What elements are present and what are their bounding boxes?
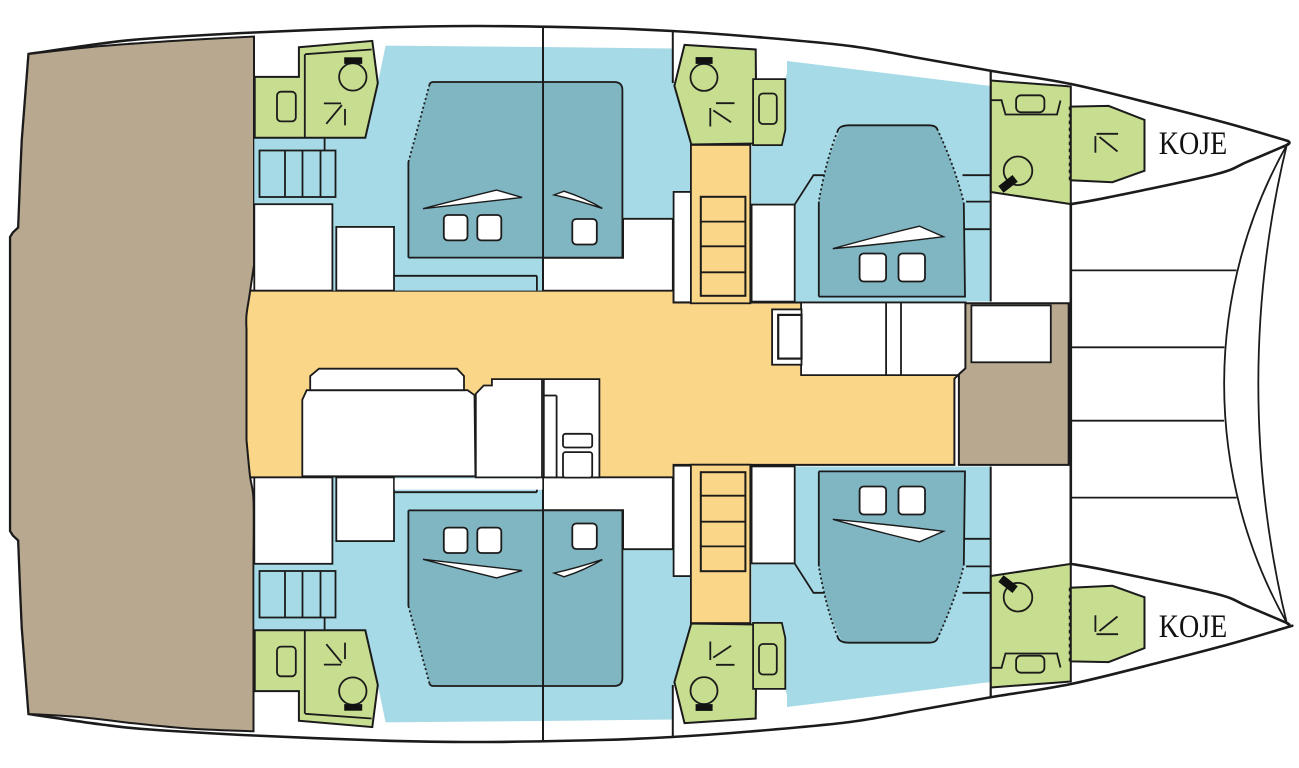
svg-text:KOJE: KOJE [1159,608,1228,645]
svg-text:KOJE: KOJE [1159,125,1228,162]
